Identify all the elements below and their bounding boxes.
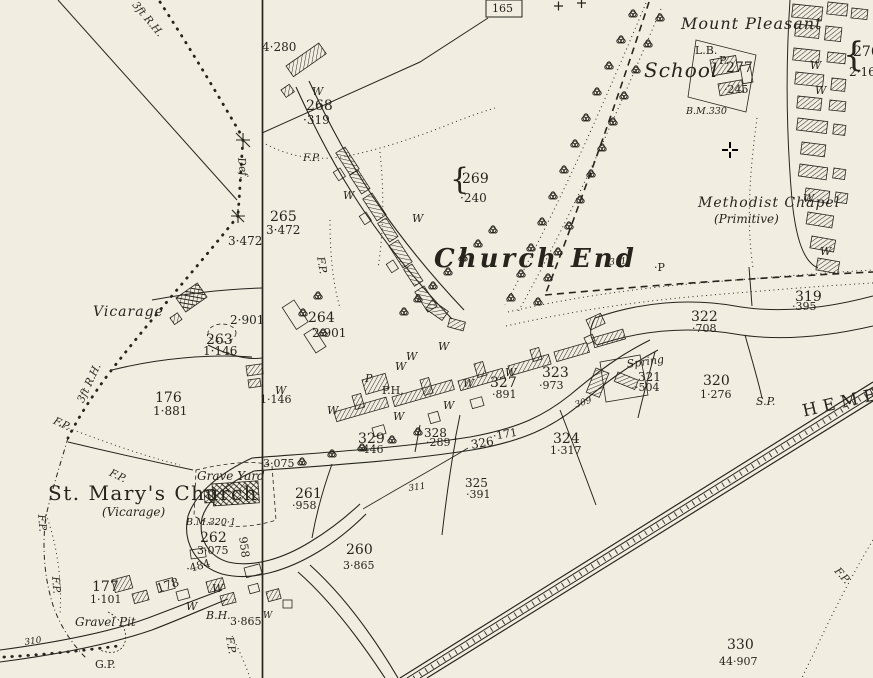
map-label-primitive: (Primitive) <box>714 213 779 225</box>
map-label-44-907: 44·907 <box>719 656 758 667</box>
map-label-3ft-r-h: 3ft R.H. <box>130 0 165 39</box>
map-label-w: W <box>438 341 449 352</box>
map-label-311: 311 <box>408 483 426 494</box>
map-label-289: ·289 <box>426 437 451 448</box>
map-label-2-901: 2·901 <box>230 314 264 326</box>
map-label-w: W <box>395 361 406 372</box>
map-label-3-865: 3·865 <box>230 616 262 627</box>
map-label-vicarage: (Vicarage) <box>102 506 165 518</box>
map-label-177: 177 <box>92 580 119 594</box>
map-label-w: W <box>463 378 474 389</box>
map-label-484: ·484 <box>185 558 212 575</box>
map-label-p: ·P <box>654 262 665 273</box>
map-label-260: 260 <box>346 543 373 557</box>
map-label-973: ·973 <box>539 380 564 391</box>
map-label-323: 323 <box>542 366 569 380</box>
map-label-b-h: B.H. <box>206 610 231 621</box>
map-label-330: 330 <box>727 638 754 652</box>
map-label-w: W <box>312 86 323 97</box>
map-label-171: ·171 <box>492 427 518 442</box>
map-label-3-472: 3·472 <box>228 235 262 247</box>
map-label-240: ·240 <box>460 192 487 204</box>
map-label-g-p: G.P. <box>95 659 116 670</box>
map-label-w: W <box>810 60 821 71</box>
map-label-b-m-330: B.M.330 <box>686 107 727 117</box>
map-label-p: P <box>365 373 372 384</box>
map-label-3-075: 3·075 <box>263 458 295 469</box>
map-label-311: 311 <box>609 258 627 268</box>
map-root: Mount PleasantSchoolMethodist Chapel(Pri… <box>0 0 873 678</box>
map-label-276: 276 <box>853 45 873 59</box>
map-label-gravel-pit: Gravel Pit <box>75 616 136 628</box>
map-label-1-146: 1·146 <box>260 394 292 405</box>
map-label-w: W <box>505 367 516 378</box>
map-label-891: ·891 <box>492 389 517 400</box>
map-label-w: W <box>443 400 454 411</box>
map-label-w: W <box>212 583 223 594</box>
map-label-w: W <box>327 405 338 416</box>
map-label-3-075: 3·075 <box>197 545 229 556</box>
map-label-504: ·504 <box>635 382 660 393</box>
map-label-mount-pleasant: Mount Pleasant <box>681 16 823 32</box>
map-label-319: ·319 <box>303 114 330 126</box>
map-label-f-p: F.P. <box>224 636 237 655</box>
map-label-w: W <box>815 85 826 96</box>
map-label-2-901: 2·901 <box>312 327 346 339</box>
map-label-269: 269 <box>462 172 489 186</box>
map-label-church-end: Church End <box>434 246 637 272</box>
map-label-f-p: F.P. <box>36 514 48 532</box>
map-label-391: ·391 <box>466 489 491 500</box>
map-label-1-101: 1·101 <box>90 594 122 605</box>
map-label-st-mary-s-church: St. Mary's Church <box>48 483 258 503</box>
map-label-1-317: 1·317 <box>550 445 582 456</box>
map-label-w: W <box>406 351 417 362</box>
map-label-446: ·446 <box>359 444 384 455</box>
map-label-w: W <box>803 193 814 204</box>
map-label-methodist-chapel: Methodist Chapel <box>698 196 840 210</box>
map-label-w: W <box>820 246 831 257</box>
map-label-395: ·395 <box>792 301 817 312</box>
map-label-1-146: 1·146 <box>203 345 237 357</box>
map-label-w: W <box>186 601 197 612</box>
map-label-245: ·245 <box>724 84 749 95</box>
map-label-265: 265 <box>270 210 297 224</box>
map-label-708: ·708 <box>692 323 717 334</box>
map-label-165: 165 <box>492 3 513 14</box>
map-label-4-280: 4·280 <box>262 41 296 53</box>
map-label-vicarage: Vicarage <box>93 305 164 319</box>
map-label-w: W <box>412 213 423 224</box>
map-label-f-p: F.P. <box>315 256 328 275</box>
map-label-264: 264 <box>308 311 335 325</box>
map-label-268: 268 <box>306 99 333 113</box>
map-label-958: 958 <box>237 536 251 558</box>
map-label-w: W <box>343 190 354 201</box>
map-label-262: 262 <box>200 531 227 545</box>
map-label-b-m-320-1: B.M.320·1 <box>186 518 236 528</box>
map-label-hemel: HEMEL <box>801 382 873 421</box>
map-label-s-p: S.P. <box>756 396 775 407</box>
map-labels: Mount PleasantSchoolMethodist Chapel(Pri… <box>0 0 873 678</box>
map-label-w: W <box>393 411 404 422</box>
map-label-3-865: 3·865 <box>343 560 375 571</box>
map-label-f-p: F.P. <box>303 153 320 164</box>
map-label-spring: Spring <box>626 354 665 370</box>
map-label-320: 320 <box>703 374 730 388</box>
map-label-176: 176 <box>155 391 182 405</box>
map-label-f-p: F.P. <box>52 416 72 433</box>
map-label-309: 309 <box>574 397 593 411</box>
map-label-grave-yard: Grave Yard <box>197 470 265 482</box>
map-label-l-b: L.B. <box>695 45 717 56</box>
map-label-958: ·958 <box>292 500 317 511</box>
map-label-p-h: P.H. <box>382 385 404 396</box>
map-label-277: 277 <box>726 61 753 75</box>
map-label-w: W <box>263 612 272 621</box>
map-label-310: 310 <box>24 637 42 648</box>
map-label-1-881: 1·881 <box>153 405 187 417</box>
map-label-326: 326 <box>470 435 495 451</box>
map-label-school: School <box>644 60 718 80</box>
map-label-3-472: 3·472 <box>266 224 300 236</box>
map-label-2-16: 2·16 <box>849 66 873 78</box>
map-label-1-276: 1·276 <box>700 389 732 400</box>
map-label-f-p: F.P. <box>50 576 62 594</box>
map-label-178: 178 <box>155 576 180 594</box>
map-label-f-p: F.P. <box>832 566 851 586</box>
map-label-def: Def. <box>236 157 249 180</box>
map-label-3ft-r-h: 3ft R.H. <box>76 362 103 404</box>
